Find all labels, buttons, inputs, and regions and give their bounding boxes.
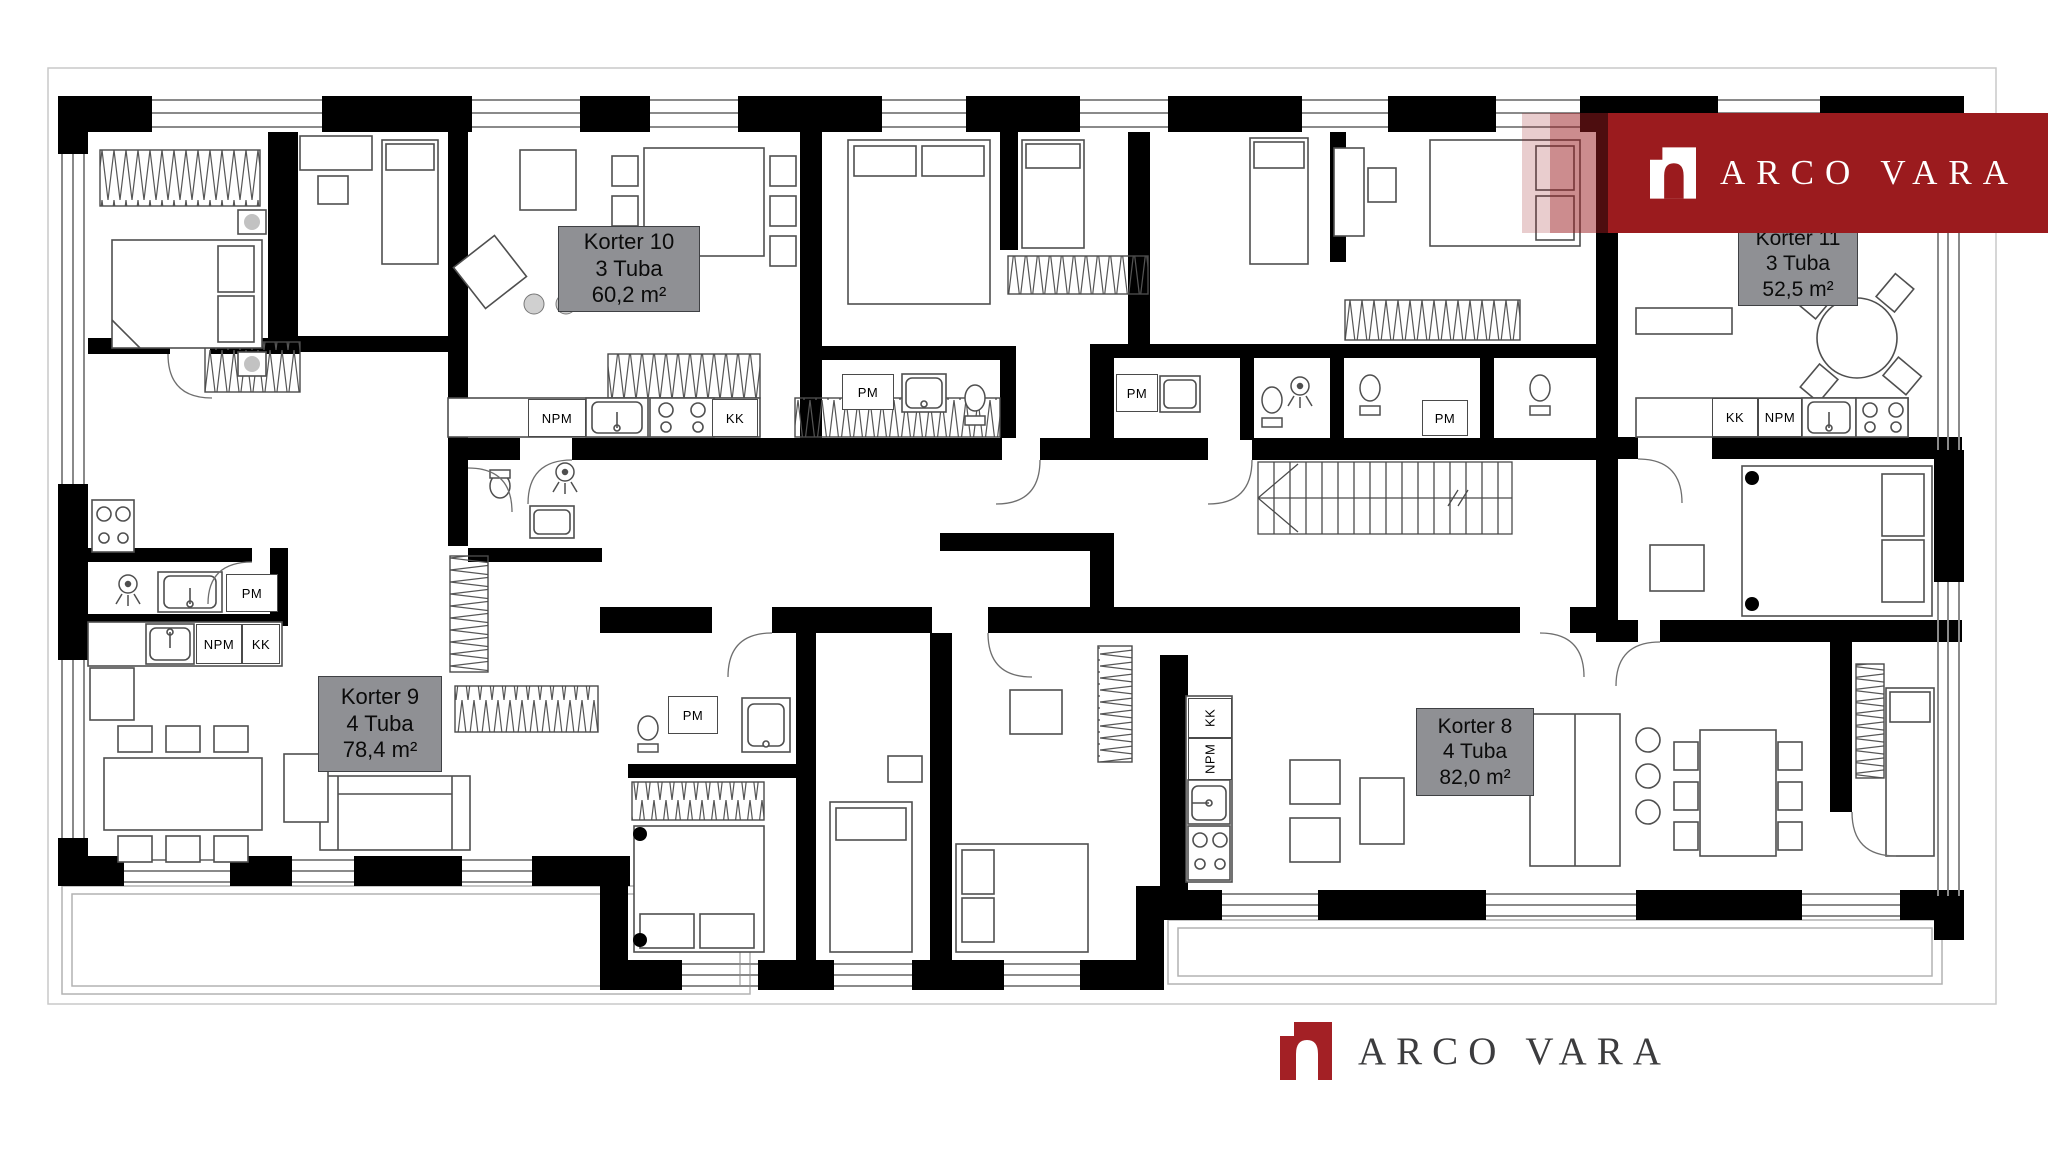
apartment-label-korter-10: Korter 10 3 Tuba 60,2 m² <box>558 226 700 312</box>
apartment-area: 60,2 m² <box>592 282 667 309</box>
apartment-label-korter-11: Korter 11 3 Tuba 52,5 m² <box>1738 222 1858 306</box>
apartment-name: Korter 8 <box>1438 714 1513 740</box>
apartment-label-korter-9: Korter 9 4 Tuba 78,4 m² <box>318 676 442 772</box>
footer-brand-text: ARCO VARA <box>1358 1029 1671 1074</box>
fixture-label-pm: PM <box>668 696 718 734</box>
apartment-rooms: 3 Tuba <box>595 256 662 283</box>
fixture-label-kk: KK <box>712 399 758 437</box>
fixture-label-npm: NPM <box>528 399 586 437</box>
fixture-label-kk: KK <box>1712 398 1758 437</box>
apartment-rooms: 4 Tuba <box>1443 739 1507 765</box>
floor-plan-page: Korter 10 3 Tuba 60,2 m² Korter 11 3 Tub… <box>0 0 2048 1152</box>
arco-vara-logo-icon <box>1650 146 1696 200</box>
banner-fade-inner <box>1550 113 1608 233</box>
fixture-label-pm: PM <box>1116 374 1158 412</box>
fixture-label-kk: KK <box>1188 698 1232 738</box>
apartment-rooms: 3 Tuba <box>1766 251 1830 277</box>
apartment-name: Korter 9 <box>341 684 419 711</box>
fixture-label-kk: KK <box>242 624 280 664</box>
apartment-label-korter-8: Korter 8 4 Tuba 82,0 m² <box>1416 708 1534 796</box>
fixture-label-pm: PM <box>226 574 278 612</box>
apartment-name: Korter 10 <box>584 229 675 256</box>
apartment-area: 82,0 m² <box>1439 765 1510 791</box>
apartment-area: 52,5 m² <box>1762 277 1833 303</box>
fixture-label-pm: PM <box>1422 400 1468 436</box>
staircase <box>1258 462 1512 534</box>
apartment-area: 78,4 m² <box>343 737 418 764</box>
banner-brand-text: ARCO VARA <box>1720 153 2019 193</box>
fixture-label-npm: NPM <box>1188 738 1232 780</box>
arco-vara-logo-icon <box>1280 1022 1332 1080</box>
footer-brand: ARCO VARA <box>1280 1022 1671 1080</box>
apartment-rooms: 4 Tuba <box>346 711 413 738</box>
fixture-label-pm: PM <box>842 374 894 410</box>
banner-fade-outer <box>1522 113 1550 233</box>
fixture-label-npm: NPM <box>196 624 242 664</box>
fixture-label-npm: NPM <box>1758 398 1802 437</box>
brand-banner: ARCO VARA <box>1608 113 2048 233</box>
